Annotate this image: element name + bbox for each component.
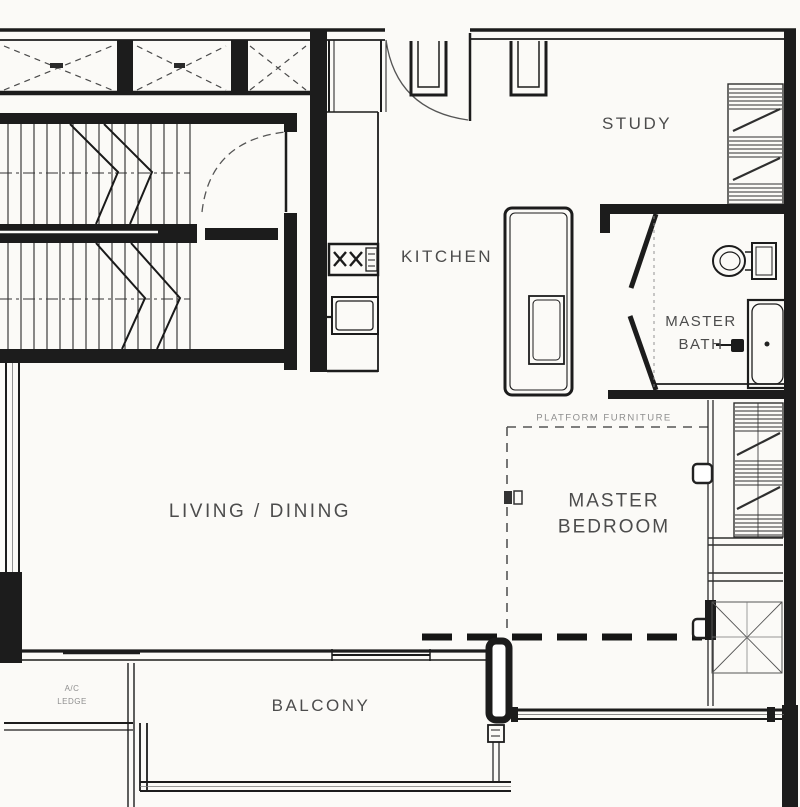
balcony-rails xyxy=(140,723,511,791)
stair-treads-lower xyxy=(8,243,190,349)
room-label-living-dining: LIVING / DINING xyxy=(169,501,351,523)
bedroom-wardrobe xyxy=(708,403,783,581)
master-bedroom-line2: BEDROOM xyxy=(558,514,670,540)
annotation-platform-furniture: PLATFORM FURNITURE xyxy=(536,413,672,424)
living-west-window xyxy=(6,363,19,572)
staircase xyxy=(0,113,297,370)
master-bath-line1: MASTER xyxy=(665,310,737,333)
east-wall xyxy=(784,30,796,807)
east-wall-bottom xyxy=(782,705,798,807)
burner-marks xyxy=(334,252,362,266)
balcony-column xyxy=(489,641,509,720)
west-wall-post xyxy=(0,572,22,663)
bedroom-window xyxy=(511,707,784,722)
ac-ledge-line1: A/C xyxy=(57,683,87,696)
section-marker xyxy=(504,491,522,504)
master-bath-line2: BATH xyxy=(665,333,737,356)
master-bedroom-line1: MASTER xyxy=(558,488,670,514)
room-label-study: STUDY xyxy=(602,114,672,134)
bathtub-icon xyxy=(748,300,787,388)
ac-ledge-right-box xyxy=(712,602,782,673)
foyer-cabinet-right xyxy=(511,41,546,95)
wardrobe-hatch xyxy=(735,407,782,535)
toilet-icon xyxy=(713,243,776,279)
foyer-cabinet-left xyxy=(411,41,446,95)
ac-ledge-line2: LEDGE xyxy=(57,696,87,709)
entry-door xyxy=(329,33,470,121)
bath-angled-wall-upper xyxy=(631,214,656,288)
stair-handrail xyxy=(205,228,278,240)
stair-treads-upper xyxy=(8,124,190,224)
balcony-downpipe-frame xyxy=(488,725,504,782)
room-label-balcony: BALCONY xyxy=(272,696,371,716)
study-wardrobe xyxy=(728,84,783,207)
room-label-ac-ledge: A/C LEDGE xyxy=(57,683,87,709)
ac-duct-row xyxy=(0,30,796,93)
right-strip-wall-stub xyxy=(705,600,716,640)
floor-plan-drawing xyxy=(0,0,800,807)
kitchen-counter-right xyxy=(505,208,572,395)
bath-angled-wall-lower xyxy=(630,316,656,390)
master-bath-walls xyxy=(600,204,785,399)
room-label-master-bath: MASTER BATH xyxy=(665,310,737,357)
floor-plan: STUDY KITCHEN MASTER BATH LIVING / DININ… xyxy=(0,0,800,807)
room-label-kitchen: KITCHEN xyxy=(401,247,493,267)
stair-landing-bar xyxy=(0,224,197,243)
stove-icon xyxy=(329,244,378,275)
duct-x-hatch xyxy=(4,46,306,90)
wardrobe-hatch xyxy=(729,89,782,204)
room-label-master-bedroom: MASTER BEDROOM xyxy=(558,488,670,539)
kitchen-west-wall xyxy=(310,30,327,372)
living-south-window xyxy=(4,649,487,661)
entry-door-swing-arc xyxy=(386,40,468,120)
stair-door-swing-arc xyxy=(202,132,286,212)
